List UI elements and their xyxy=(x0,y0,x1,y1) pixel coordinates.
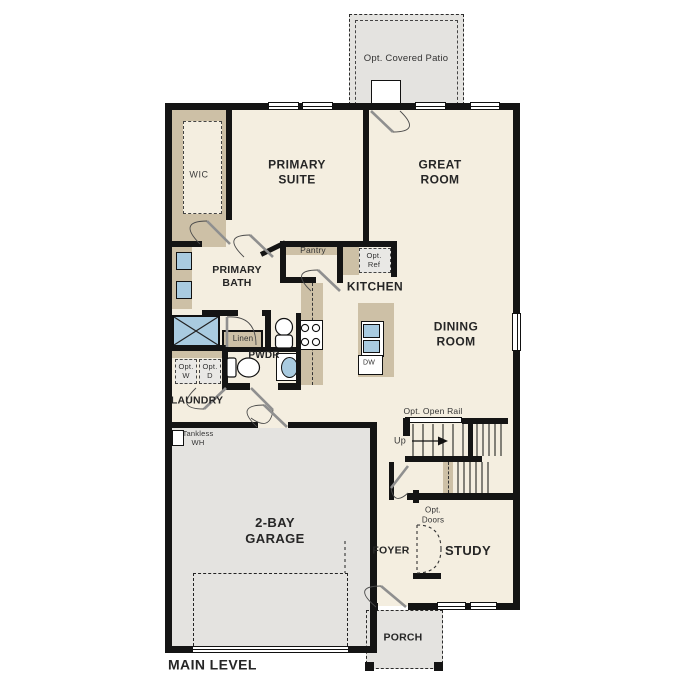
wall-below-wic xyxy=(165,241,202,247)
wall-left xyxy=(165,103,172,653)
porch-label: PORCH xyxy=(384,632,423,645)
wall-stair-bottom xyxy=(407,493,513,500)
wall-garage-bottom-left xyxy=(165,646,193,653)
opt-ref-label: Opt. Ref xyxy=(367,251,382,269)
porch-post-right xyxy=(434,662,443,671)
laundry-shelf xyxy=(172,351,222,358)
window-great-1 xyxy=(415,102,446,110)
wic-label: WIC xyxy=(189,170,208,181)
pantry-label: Pantry xyxy=(300,245,326,255)
window-dining xyxy=(512,313,521,351)
garage-door-dashed-outline xyxy=(193,573,348,646)
floor-plan: Opt. Covered Patio WIC PRIMARY SUITE GRE… xyxy=(0,0,687,687)
vanity-sink-1 xyxy=(176,252,192,270)
island-sink-basin-1 xyxy=(363,324,380,338)
linen-label: Linen xyxy=(233,334,254,344)
vanity-sink-2 xyxy=(176,281,192,299)
tankless-wh-label: Tankless WH xyxy=(183,429,214,447)
wall-suite-divider xyxy=(363,110,369,241)
window-great-2 xyxy=(470,102,500,110)
wall-wc-nook-left xyxy=(265,316,271,350)
cabinet-by-ref xyxy=(343,247,359,275)
wall-stair-left-stub xyxy=(403,418,410,436)
window-study-1 xyxy=(437,602,466,610)
open-rail-bar xyxy=(405,417,462,423)
wic-floor xyxy=(183,121,222,214)
patio-label: Opt. Covered Patio xyxy=(364,53,448,65)
opt-d-label: Opt. D xyxy=(203,362,218,380)
wall-bath-vestibule xyxy=(202,310,238,316)
wall-pwdr-bottom-left xyxy=(222,383,250,390)
wall-stair-mid xyxy=(405,456,482,462)
dw-label: DW xyxy=(363,360,375,369)
wall-front-4 xyxy=(497,603,513,610)
wall-ref-right xyxy=(391,246,397,277)
understair-wall-strip xyxy=(443,462,453,493)
opt-doors-label: Opt. Doors xyxy=(422,505,444,525)
garage-door-line xyxy=(193,646,348,653)
dining-room-label: DINING ROOM xyxy=(434,319,478,348)
wall-top xyxy=(165,103,520,110)
study-label: STUDY xyxy=(445,543,491,559)
wall-stair-divider xyxy=(468,423,473,457)
wall-closet-left xyxy=(389,462,394,500)
garage-label: 2-BAY GARAGE xyxy=(245,515,304,547)
foyer-label: FOYER xyxy=(372,545,409,558)
wall-garage-top-right xyxy=(288,422,377,428)
window-study-2 xyxy=(470,602,497,610)
window-suite-2 xyxy=(302,102,333,110)
primary-suite-label: PRIMARY SUITE xyxy=(268,157,326,186)
shower xyxy=(172,315,220,347)
wall-front-1 xyxy=(370,603,378,610)
pwdr-label: PWDR xyxy=(248,350,279,362)
primary-bath-label: PRIMARY BATH xyxy=(212,264,261,290)
cooktop xyxy=(298,320,323,350)
wall-pwdr-bottom-right xyxy=(278,383,300,390)
kitchen-label: KITCHEN xyxy=(347,280,403,295)
wall-front-2 xyxy=(408,603,437,610)
main-level-title: MAIN LEVEL xyxy=(168,656,257,673)
up-label: Up xyxy=(394,436,406,447)
great-room-label: GREAT ROOM xyxy=(418,157,461,186)
wall-study-bottom-stub xyxy=(413,573,441,579)
wall-right xyxy=(513,103,520,610)
opt-w-label: Opt. W xyxy=(179,362,194,380)
island-sink-basin-2 xyxy=(363,340,380,353)
porch-post-left xyxy=(365,662,374,671)
window-suite-1 xyxy=(268,102,299,110)
wall-garage-top-left xyxy=(165,422,258,428)
wall-foyer-study-stub xyxy=(413,490,419,503)
wall-laundry-top xyxy=(165,345,228,351)
wall-wic-right xyxy=(226,110,232,220)
laundry-label: LAUNDRY xyxy=(171,395,223,408)
opt-open-rail-label: Opt. Open Rail xyxy=(403,406,462,416)
wall-pantry-right xyxy=(337,246,343,283)
wall-pantry-bottom xyxy=(280,277,316,283)
wall-garage-right xyxy=(370,425,377,653)
